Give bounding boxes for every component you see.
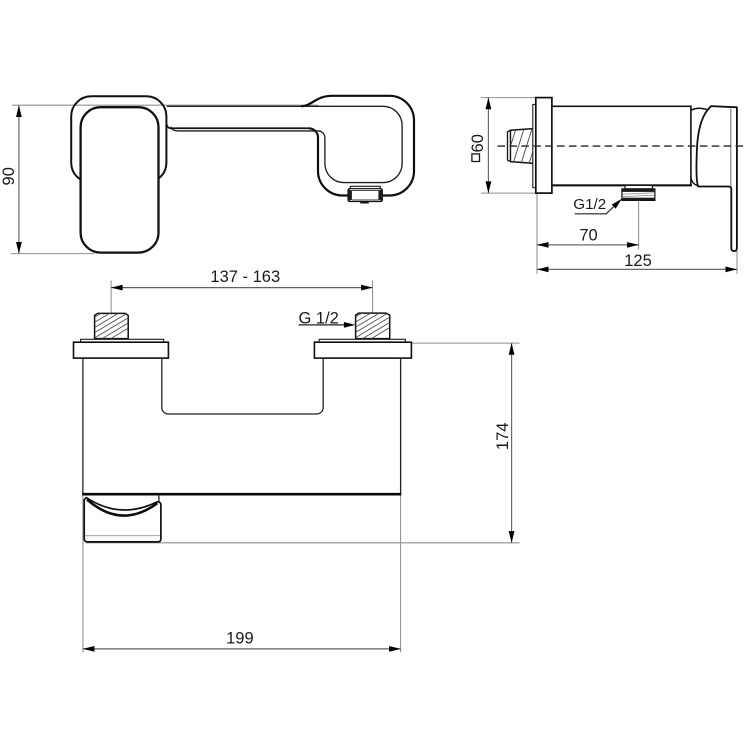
svg-text:137 - 163: 137 - 163 (210, 268, 280, 286)
svg-text:70: 70 (579, 226, 597, 244)
svg-text:125: 125 (624, 252, 652, 270)
svg-text:G1/2: G1/2 (573, 196, 606, 213)
svg-text:90: 90 (0, 167, 18, 185)
svg-text:199: 199 (226, 629, 254, 647)
svg-text:60: 60 (469, 134, 487, 152)
svg-text:174: 174 (494, 423, 512, 451)
